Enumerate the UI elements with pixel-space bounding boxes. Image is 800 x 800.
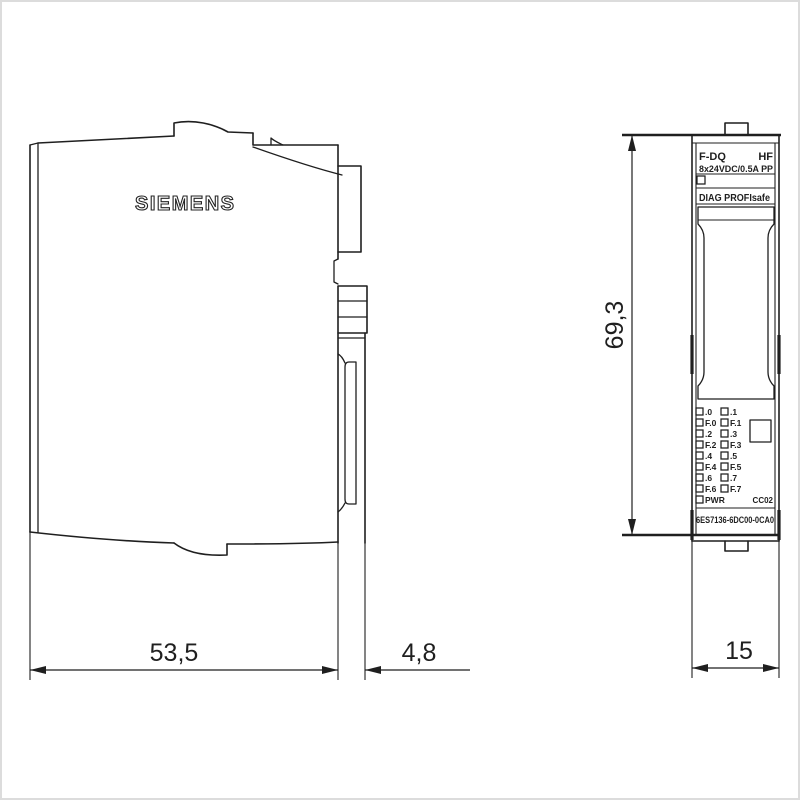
side-top-step bbox=[253, 133, 338, 145]
dim-width-label: 15 bbox=[725, 637, 753, 665]
release-slider-hook-bottom bbox=[338, 503, 345, 512]
terminal-door bbox=[698, 207, 774, 399]
module-type-label: F-DQ bbox=[699, 151, 726, 163]
led-label: F.2 bbox=[705, 440, 717, 450]
led-label: PWR bbox=[705, 495, 725, 505]
addressing-window bbox=[750, 420, 771, 442]
dim-depth-label: 53,5 bbox=[150, 639, 199, 667]
dim-connector-label: 4,8 bbox=[402, 639, 437, 667]
top-snap-tab bbox=[725, 123, 748, 135]
led-label: .7 bbox=[730, 473, 737, 483]
led-indicator bbox=[721, 463, 728, 470]
led-indicator bbox=[721, 430, 728, 437]
bottom-latch-tab bbox=[174, 543, 227, 555]
led-label: F.7 bbox=[730, 484, 742, 494]
led-label: .6 bbox=[705, 473, 712, 483]
bus-connector-block bbox=[338, 166, 361, 252]
led-label: .3 bbox=[730, 429, 737, 439]
release-slider bbox=[345, 362, 356, 504]
diag-profisafe-label: DIAG PROFIsafe bbox=[699, 192, 770, 204]
led-indicator bbox=[696, 463, 703, 470]
led-field: .0 .1 F.0 F.1 .2 .3 F.2 F.3 .4 .5 F.4 F.… bbox=[696, 407, 774, 505]
top-latch-hook bbox=[271, 138, 283, 145]
led-label: F.6 bbox=[705, 484, 717, 494]
module-rating-label: 8x24VDC/0.5A PP bbox=[699, 164, 774, 175]
led-indicator bbox=[696, 496, 703, 503]
led-label: .4 bbox=[705, 451, 712, 461]
side-top-edge bbox=[38, 136, 174, 143]
side-bottom-edge bbox=[30, 532, 174, 543]
side-view: SIEMENS bbox=[30, 122, 367, 556]
bottom-snap-tab bbox=[725, 541, 748, 551]
top-latch-tab bbox=[174, 122, 253, 136]
led-label: .5 bbox=[730, 451, 737, 461]
terminal-stack bbox=[338, 286, 367, 333]
arrowhead-left-icon bbox=[365, 666, 381, 674]
module-class-label: HF bbox=[758, 151, 773, 163]
side-bottom-edge-right bbox=[227, 542, 338, 544]
front-view: F-DQ HF 8x24VDC/0.5A PP DIAG PROFIsafe .… bbox=[622, 123, 781, 551]
arrowhead-left-icon bbox=[30, 666, 46, 674]
front-view-dimensions: 69,3 15 bbox=[601, 135, 779, 678]
led-label: .2 bbox=[705, 429, 712, 439]
technical-drawing: SIEMENS 53,5 4,8 bbox=[2, 2, 798, 798]
led-indicator bbox=[696, 419, 703, 426]
led-indicator bbox=[696, 441, 703, 448]
side-front-edge-cap bbox=[30, 143, 38, 145]
led-indicator bbox=[721, 474, 728, 481]
led-indicator bbox=[696, 408, 703, 415]
order-number-label: 6ES7136-6DC00-0CA0 bbox=[696, 515, 774, 526]
led-label: .1 bbox=[730, 407, 737, 417]
led-label: F.3 bbox=[730, 440, 742, 450]
version-code-label: CC02 bbox=[753, 496, 774, 505]
status-led-indicator bbox=[697, 176, 705, 184]
led-label: F.1 bbox=[730, 418, 742, 428]
side-top-curve bbox=[253, 147, 342, 175]
arrowhead-right-icon bbox=[763, 664, 779, 672]
side-rail-step bbox=[334, 259, 338, 284]
led-indicator bbox=[721, 452, 728, 459]
dimension-drawing-page: SIEMENS 53,5 4,8 bbox=[0, 0, 800, 800]
led-indicator bbox=[721, 408, 728, 415]
side-view-dimensions: 53,5 4,8 bbox=[30, 532, 470, 680]
led-indicator bbox=[721, 419, 728, 426]
led-label: .0 bbox=[705, 407, 712, 417]
led-label: F.0 bbox=[705, 418, 717, 428]
led-indicator bbox=[696, 430, 703, 437]
arrowhead-down-icon bbox=[628, 519, 636, 535]
led-label: F.4 bbox=[705, 462, 717, 472]
led-indicator bbox=[696, 485, 703, 492]
release-slider-hook-top bbox=[338, 354, 345, 363]
arrowhead-left-icon bbox=[692, 664, 708, 672]
arrowhead-up-icon bbox=[628, 135, 636, 151]
dim-height-label: 69,3 bbox=[601, 301, 629, 350]
led-indicator bbox=[696, 452, 703, 459]
led-indicator bbox=[696, 474, 703, 481]
led-label: F.5 bbox=[730, 462, 742, 472]
led-indicator bbox=[721, 485, 728, 492]
led-indicator bbox=[721, 441, 728, 448]
arrowhead-right-icon bbox=[322, 666, 338, 674]
siemens-logo-text: SIEMENS bbox=[135, 193, 236, 215]
